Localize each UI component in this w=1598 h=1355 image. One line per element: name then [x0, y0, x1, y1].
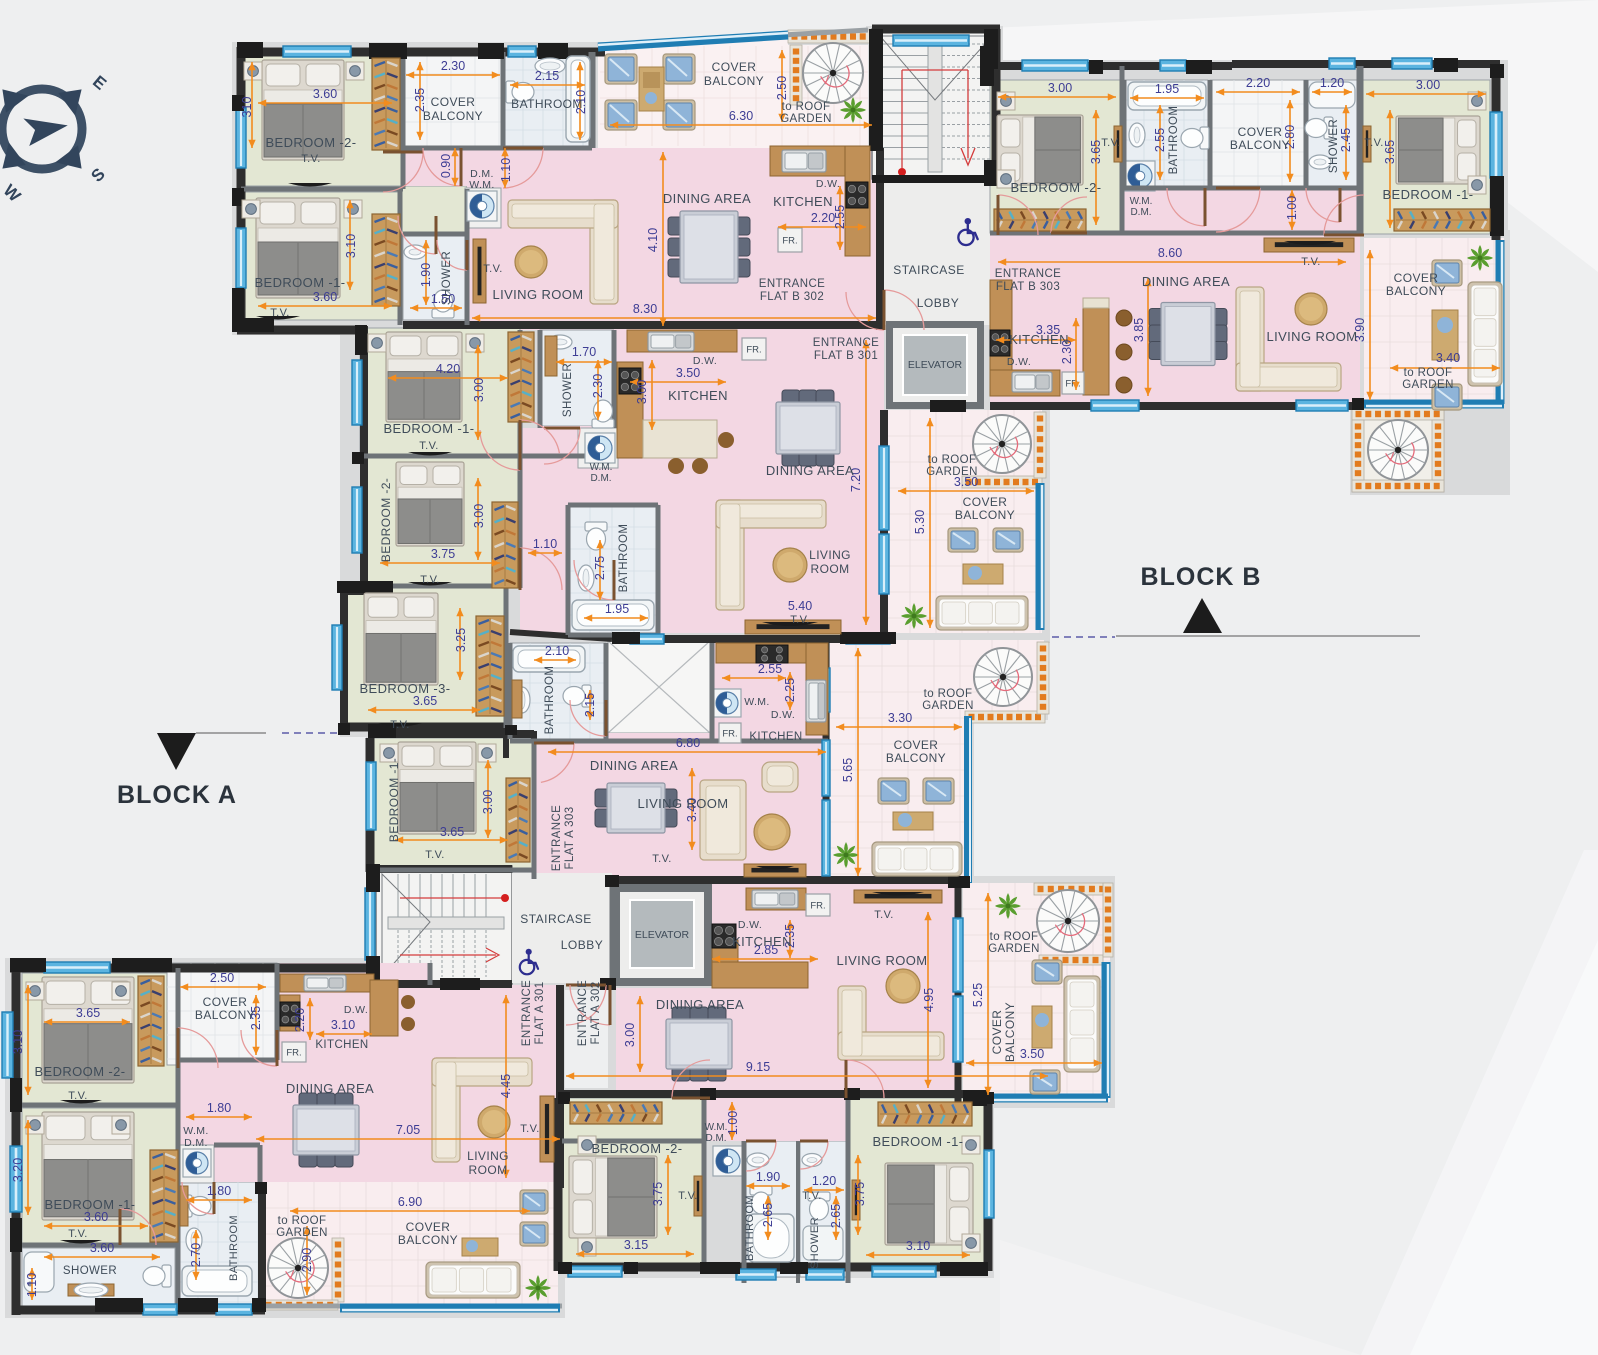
svg-text:3.75: 3.75: [853, 1182, 867, 1206]
svg-text:1.00: 1.00: [726, 1111, 740, 1135]
svg-text:BALCONY: BALCONY: [195, 1008, 255, 1022]
svg-text:4.95: 4.95: [922, 988, 936, 1012]
svg-text:6.80: 6.80: [676, 736, 700, 750]
svg-text:LIVING ROOM: LIVING ROOM: [1266, 329, 1357, 344]
svg-text:2.75: 2.75: [593, 556, 607, 580]
svg-text:D.W.: D.W.: [344, 1004, 368, 1016]
svg-text:2.15: 2.15: [583, 693, 597, 717]
svg-text:KITCHEN: KITCHEN: [668, 388, 728, 403]
svg-text:4.10: 4.10: [646, 228, 660, 252]
svg-text:BALCONY: BALCONY: [1003, 1002, 1017, 1062]
svg-text:3.65: 3.65: [76, 1006, 100, 1020]
svg-text:to ROOF: to ROOF: [782, 101, 831, 113]
svg-text:T.V.: T.V.: [874, 909, 894, 921]
svg-text:3.00: 3.00: [1416, 78, 1440, 92]
svg-text:to ROOF: to ROOF: [924, 688, 973, 700]
svg-text:1.20: 1.20: [812, 1174, 836, 1188]
svg-text:3.00: 3.00: [1048, 81, 1072, 95]
svg-text:FLAT A 301: FLAT A 301: [534, 981, 546, 1044]
svg-text:2.20: 2.20: [1246, 76, 1270, 90]
svg-text:2.30: 2.30: [441, 59, 465, 73]
svg-text:BATHROOM: BATHROOM: [744, 1195, 756, 1261]
svg-text:3.10: 3.10: [906, 1239, 930, 1253]
svg-text:T.V.: T.V.: [802, 1190, 822, 1202]
svg-text:BATHROOM: BATHROOM: [228, 1215, 240, 1281]
svg-text:BEDROOM -1-: BEDROOM -1-: [1382, 187, 1473, 202]
svg-text:1.80: 1.80: [207, 1101, 231, 1115]
svg-text:0.90: 0.90: [439, 154, 453, 178]
svg-text:2.15: 2.15: [535, 69, 559, 83]
svg-text:2.90: 2.90: [300, 1248, 314, 1272]
svg-text:FR.: FR.: [286, 1048, 301, 1059]
svg-text:3.10: 3.10: [11, 1030, 25, 1054]
svg-text:T.V.: T.V.: [790, 614, 810, 626]
svg-text:2.25: 2.25: [783, 678, 797, 702]
svg-text:T.V.: T.V.: [68, 1090, 88, 1102]
svg-text:3.65: 3.65: [1383, 140, 1397, 164]
svg-text:T.V.: T.V.: [1301, 256, 1321, 268]
svg-text:D.M.: D.M.: [590, 473, 611, 484]
svg-text:DINING AREA: DINING AREA: [590, 758, 678, 773]
svg-text:2.10: 2.10: [545, 644, 569, 658]
svg-text:COVER: COVER: [1238, 125, 1283, 139]
svg-text:2.65: 2.65: [829, 1204, 843, 1228]
svg-text:BEDROOM -1-: BEDROOM -1-: [383, 421, 474, 436]
svg-text:2.20: 2.20: [293, 1008, 307, 1032]
svg-text:3.40: 3.40: [1436, 351, 1460, 365]
svg-text:GARDEN: GARDEN: [1402, 379, 1454, 391]
svg-text:BATHROOM: BATHROOM: [544, 666, 556, 735]
svg-text:W.M.: W.M.: [590, 462, 613, 473]
svg-text:GARDEN: GARDEN: [276, 1227, 328, 1239]
svg-text:SHOWER: SHOWER: [63, 1265, 117, 1277]
svg-text:to ROOF: to ROOF: [278, 1215, 327, 1227]
svg-text:D.W.: D.W.: [738, 919, 762, 931]
svg-text:3.60: 3.60: [84, 1210, 108, 1224]
svg-text:D.M.: D.M.: [1130, 207, 1151, 218]
svg-text:LIVING: LIVING: [467, 1149, 509, 1163]
svg-text:BATHROOM: BATHROOM: [1168, 106, 1180, 175]
svg-text:3.15: 3.15: [624, 1238, 648, 1252]
svg-text:ENTRANCE: ENTRANCE: [577, 980, 589, 1046]
svg-text:ELEVATOR: ELEVATOR: [635, 929, 690, 941]
svg-text:2.45: 2.45: [1339, 128, 1353, 152]
svg-text:1.90: 1.90: [756, 1170, 780, 1184]
svg-text:ELEVATOR: ELEVATOR: [908, 359, 963, 371]
svg-text:3.00: 3.00: [472, 504, 486, 528]
svg-text:DINING AREA: DINING AREA: [656, 997, 744, 1012]
svg-text:3.65: 3.65: [413, 694, 437, 708]
svg-text:1.00: 1.00: [1285, 196, 1299, 220]
svg-text:BLOCK A: BLOCK A: [117, 781, 237, 809]
svg-text:3.10: 3.10: [331, 1018, 355, 1032]
svg-text:8.30: 8.30: [633, 302, 657, 316]
svg-text:FLAT B 302: FLAT B 302: [760, 291, 824, 303]
svg-text:3.00: 3.00: [481, 790, 495, 814]
svg-text:BEDROOM -2-: BEDROOM -2-: [34, 1064, 125, 1079]
svg-text:to ROOF: to ROOF: [990, 931, 1039, 943]
svg-text:T.V.: T.V.: [652, 853, 672, 865]
svg-text:1.20: 1.20: [1320, 76, 1344, 90]
svg-text:3.00: 3.00: [472, 378, 486, 402]
svg-text:2.70: 2.70: [189, 1243, 203, 1267]
svg-text:W.M.: W.M.: [705, 1122, 728, 1133]
svg-text:2.55: 2.55: [758, 662, 782, 676]
svg-text:ENTRANCE: ENTRANCE: [551, 805, 563, 871]
svg-text:GARDEN: GARDEN: [780, 113, 832, 125]
svg-text:BEDROOM -1-: BEDROOM -1-: [44, 1197, 135, 1212]
svg-text:ROOM: ROOM: [469, 1163, 508, 1177]
svg-text:1.10: 1.10: [25, 1273, 39, 1297]
svg-text:T.V.: T.V.: [678, 1190, 698, 1202]
svg-text:T.V.: T.V.: [520, 1123, 540, 1135]
svg-text:3.60: 3.60: [313, 290, 337, 304]
svg-text:BALCONY: BALCONY: [704, 74, 764, 88]
svg-text:COVER: COVER: [203, 995, 248, 1009]
svg-text:BATHROOM: BATHROOM: [618, 524, 630, 593]
svg-text:BALCONY: BALCONY: [1230, 138, 1290, 152]
svg-text:2.65: 2.65: [761, 1203, 775, 1227]
svg-text:KITCHEN: KITCHEN: [315, 1039, 368, 1051]
svg-text:BALCONY: BALCONY: [398, 1233, 458, 1247]
svg-text:T.V.: T.V.: [483, 263, 503, 275]
svg-text:3.65: 3.65: [440, 825, 464, 839]
svg-text:3.30: 3.30: [888, 711, 912, 725]
svg-text:D.W.: D.W.: [771, 709, 795, 721]
svg-text:1.80: 1.80: [207, 1184, 231, 1198]
svg-text:COVER: COVER: [963, 495, 1008, 509]
svg-text:W.M.: W.M.: [183, 1125, 209, 1137]
svg-text:KITCHEN: KITCHEN: [1009, 332, 1069, 347]
svg-text:LIVING ROOM: LIVING ROOM: [637, 796, 728, 811]
svg-text:LIVING ROOM: LIVING ROOM: [492, 287, 583, 302]
svg-text:FLAT B 303: FLAT B 303: [996, 281, 1060, 293]
svg-text:BALCONY: BALCONY: [423, 109, 483, 123]
svg-text:BALCONY: BALCONY: [955, 508, 1015, 522]
svg-text:1.70: 1.70: [572, 345, 596, 359]
svg-text:2.50: 2.50: [775, 76, 789, 100]
svg-text:6.30: 6.30: [729, 109, 753, 123]
svg-text:T.V.: T.V.: [68, 1228, 88, 1240]
svg-text:3.00: 3.00: [635, 380, 649, 404]
svg-text:5.65: 5.65: [841, 758, 855, 782]
svg-text:D.W.: D.W.: [816, 178, 840, 190]
svg-text:DINING AREA: DINING AREA: [1142, 274, 1230, 289]
svg-text:W.M.: W.M.: [744, 696, 770, 708]
svg-text:3.50: 3.50: [1020, 1047, 1044, 1061]
svg-text:T.V.: T.V.: [1101, 137, 1121, 149]
svg-text:3.75: 3.75: [431, 547, 455, 561]
svg-text:1.10: 1.10: [533, 537, 557, 551]
svg-text:W.M.: W.M.: [469, 179, 495, 191]
svg-text:to ROOF: to ROOF: [1404, 367, 1453, 379]
svg-text:3.10: 3.10: [344, 234, 358, 258]
svg-text:BEDROOM -1-: BEDROOM -1-: [387, 758, 401, 842]
svg-text:COVER: COVER: [894, 738, 939, 752]
svg-text:COVER: COVER: [406, 1220, 451, 1234]
svg-text:GARDEN: GARDEN: [988, 943, 1040, 955]
svg-text:FR.: FR.: [782, 236, 797, 247]
svg-text:SHOWER: SHOWER: [809, 1217, 821, 1269]
svg-text:3.50: 3.50: [676, 366, 700, 380]
svg-text:BALCONY: BALCONY: [1386, 284, 1446, 298]
svg-text:BALCONY: BALCONY: [886, 751, 946, 765]
svg-text:BEDROOM -2-: BEDROOM -2-: [1010, 180, 1101, 195]
svg-text:KITCHEN: KITCHEN: [773, 194, 833, 209]
svg-text:2.50: 2.50: [210, 971, 234, 985]
svg-text:1.95: 1.95: [1155, 82, 1179, 96]
svg-text:3.20: 3.20: [11, 1158, 25, 1182]
svg-text:ENTRANCE: ENTRANCE: [813, 337, 879, 349]
svg-text:BATHROOM: BATHROOM: [511, 97, 583, 111]
svg-text:3.75: 3.75: [651, 1182, 665, 1206]
svg-text:D.W.: D.W.: [1007, 356, 1031, 368]
svg-text:KITCHEN: KITCHEN: [749, 731, 802, 743]
svg-text:COVER: COVER: [990, 1010, 1004, 1055]
svg-text:D.M.: D.M.: [705, 1133, 726, 1144]
svg-text:DINING AREA: DINING AREA: [766, 463, 854, 478]
svg-text:T.V.: T.V.: [1364, 137, 1384, 149]
svg-text:ENTRANCE: ENTRANCE: [759, 278, 825, 290]
svg-text:to ROOF: to ROOF: [928, 454, 977, 466]
svg-text:BEDROOM -3-: BEDROOM -3-: [359, 681, 450, 696]
svg-text:BEDROOM -1-: BEDROOM -1-: [872, 1134, 963, 1149]
svg-text:310: 310: [240, 97, 254, 118]
svg-text:2.20: 2.20: [811, 211, 835, 225]
svg-text:1.10: 1.10: [499, 158, 513, 182]
svg-text:BEDROOM -2-: BEDROOM -2-: [379, 478, 393, 562]
svg-text:5.30: 5.30: [913, 510, 927, 534]
svg-text:9.15: 9.15: [746, 1060, 770, 1074]
svg-text:GARDEN: GARDEN: [922, 700, 974, 712]
svg-text:LIVING: LIVING: [809, 548, 851, 562]
svg-text:2.55: 2.55: [1153, 128, 1167, 152]
svg-text:1.90: 1.90: [419, 263, 433, 287]
svg-text:3.00: 3.00: [623, 1023, 637, 1047]
svg-text:DINING AREA: DINING AREA: [286, 1081, 374, 1096]
svg-text:3.25: 3.25: [454, 628, 468, 652]
svg-text:T.V.: T.V.: [301, 153, 321, 165]
svg-text:DINING AREA: DINING AREA: [663, 191, 751, 206]
svg-text:COVER: COVER: [1394, 271, 1439, 285]
svg-text:T.V.: T.V.: [420, 574, 440, 586]
svg-text:BEDROOM -1-: BEDROOM -1-: [254, 275, 345, 290]
svg-text:COVER: COVER: [712, 60, 757, 74]
svg-text:3.60: 3.60: [90, 1241, 114, 1255]
svg-text:T.V.: T.V.: [419, 440, 439, 452]
svg-text:SHOWER: SHOWER: [562, 363, 574, 417]
svg-text:STAIRCASE: STAIRCASE: [893, 263, 965, 277]
svg-text:ENTRANCE: ENTRANCE: [521, 980, 533, 1046]
svg-text:LOBBY: LOBBY: [917, 296, 960, 310]
svg-text:BLOCK B: BLOCK B: [1141, 563, 1262, 591]
svg-text:FLAT A 303: FLAT A 303: [564, 806, 576, 869]
svg-text:ENTRANCE: ENTRANCE: [995, 268, 1061, 280]
svg-text:FLAT B 301: FLAT B 301: [814, 350, 878, 362]
svg-text:W.M.: W.M.: [1130, 196, 1153, 207]
svg-text:1.95: 1.95: [605, 602, 629, 616]
svg-text:COVER: COVER: [431, 95, 476, 109]
svg-text:2.30: 2.30: [591, 374, 605, 398]
svg-text:7.05: 7.05: [396, 1123, 420, 1137]
svg-text:KITCHEN: KITCHEN: [732, 934, 792, 949]
svg-text:4.45: 4.45: [499, 1074, 513, 1098]
svg-text:LOBBY: LOBBY: [561, 938, 604, 952]
svg-text:T.V.: T.V.: [425, 849, 445, 861]
svg-text:BEDROOM -2-: BEDROOM -2-: [265, 135, 356, 150]
svg-text:GARDEN: GARDEN: [926, 466, 978, 478]
svg-text:ROOM: ROOM: [811, 562, 850, 576]
svg-text:T.V.: T.V.: [270, 307, 290, 319]
svg-text:D.W.: D.W.: [693, 355, 717, 367]
svg-text:8.60: 8.60: [1158, 246, 1182, 260]
svg-text:FR.: FR.: [746, 345, 761, 356]
svg-text:SHOWER: SHOWER: [441, 251, 453, 305]
svg-text:3.85: 3.85: [1132, 318, 1146, 342]
svg-text:D.M.: D.M.: [184, 1137, 208, 1149]
svg-text:FLAT A 302: FLAT A 302: [590, 981, 602, 1044]
svg-text:SHOWER: SHOWER: [1328, 119, 1340, 173]
svg-text:T.V.: T.V.: [390, 719, 410, 731]
svg-text:5.25: 5.25: [971, 983, 985, 1007]
svg-text:STAIRCASE: STAIRCASE: [520, 912, 592, 926]
svg-text:5.40: 5.40: [788, 599, 812, 613]
svg-text:2.55: 2.55: [833, 205, 847, 229]
svg-text:LIVING ROOM: LIVING ROOM: [836, 953, 927, 968]
svg-text:4.20: 4.20: [436, 362, 460, 376]
svg-text:3.60: 3.60: [313, 87, 337, 101]
svg-text:6.90: 6.90: [398, 1195, 422, 1209]
svg-text:FR.: FR.: [810, 901, 825, 912]
svg-text:FR.: FR.: [722, 729, 737, 740]
svg-text:BEDROOM -2-: BEDROOM -2-: [591, 1141, 682, 1156]
